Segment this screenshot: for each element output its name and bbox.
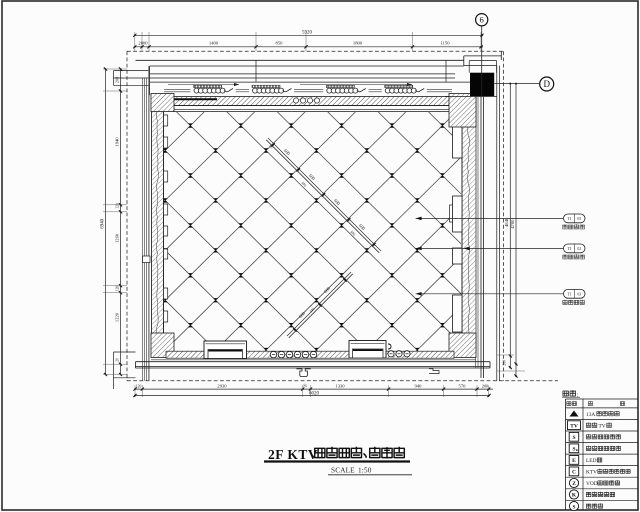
svg-text:200: 200 xyxy=(503,360,507,366)
svg-text:20: 20 xyxy=(115,358,119,362)
svg-text:6940: 6940 xyxy=(101,218,106,228)
svg-text:03: 03 xyxy=(577,293,581,297)
svg-text:120: 120 xyxy=(115,286,119,292)
svg-text:SCALE: SCALE xyxy=(331,467,355,475)
svg-text:850: 850 xyxy=(276,40,284,45)
svg-text:1150: 1150 xyxy=(440,40,450,45)
svg-text:1260: 1260 xyxy=(114,233,119,243)
svg-text:TV: TV xyxy=(570,423,578,429)
svg-text:2930: 2930 xyxy=(217,383,227,388)
svg-text:1400: 1400 xyxy=(209,40,219,45)
svg-text:1800: 1800 xyxy=(353,40,363,45)
svg-text:20: 20 xyxy=(304,384,308,388)
svg-text:6: 6 xyxy=(480,15,485,25)
svg-text:S: S xyxy=(572,447,575,453)
svg-text:570: 570 xyxy=(459,383,467,388)
svg-text:1220: 1220 xyxy=(114,312,119,322)
svg-text:2000: 2000 xyxy=(138,40,148,45)
svg-text:02: 02 xyxy=(577,247,581,251)
svg-text:D: D xyxy=(543,79,550,89)
svg-text:2F KTV: 2F KTV xyxy=(268,447,318,462)
svg-text:1940: 1940 xyxy=(114,137,119,147)
svg-text:5920: 5920 xyxy=(302,30,313,35)
svg-text:13A: 13A xyxy=(586,412,595,418)
svg-text:200: 200 xyxy=(482,383,488,388)
svg-text:1330: 1330 xyxy=(335,383,345,388)
svg-text:VOD: VOD xyxy=(586,481,598,487)
svg-text:05: 05 xyxy=(577,217,581,221)
svg-text:TV: TV xyxy=(599,423,606,429)
svg-text:1:50: 1:50 xyxy=(358,467,372,475)
svg-text:200: 200 xyxy=(114,76,119,83)
svg-text:S: S xyxy=(573,504,576,510)
svg-text:S: S xyxy=(572,435,575,441)
svg-text:6020: 6020 xyxy=(309,391,320,396)
svg-text:120: 120 xyxy=(115,203,119,209)
svg-text:E: E xyxy=(572,458,576,464)
svg-text:Z: Z xyxy=(572,481,576,487)
svg-text:C: C xyxy=(572,470,576,476)
svg-text:4780: 4780 xyxy=(510,219,515,229)
svg-text:120: 120 xyxy=(136,384,142,388)
svg-text:940: 940 xyxy=(415,383,423,388)
svg-text:LED: LED xyxy=(586,458,597,464)
svg-text:KTV: KTV xyxy=(586,470,597,476)
